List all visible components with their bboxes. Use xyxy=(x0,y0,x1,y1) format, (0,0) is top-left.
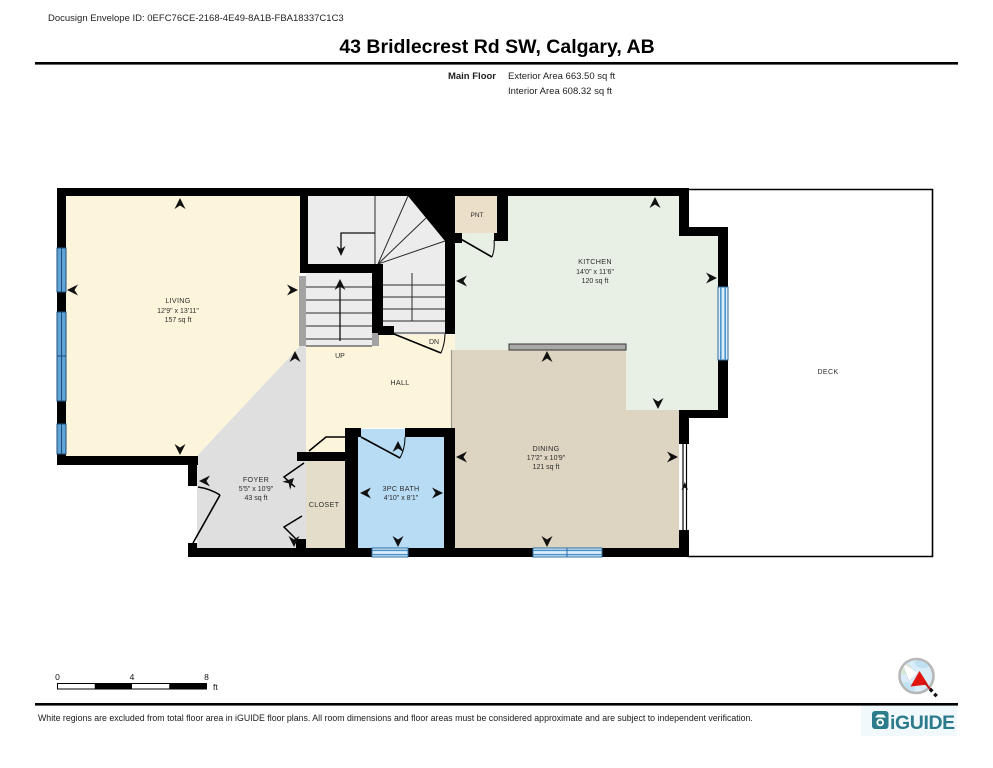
svg-text:43 sq ft: 43 sq ft xyxy=(245,495,268,502)
svg-text:iGUIDE: iGUIDE xyxy=(890,712,955,734)
svg-text:Docusign Envelope ID: 0EFC76CE: Docusign Envelope ID: 0EFC76CE-2168-4E49… xyxy=(48,13,344,24)
svg-text:14'0" x 11'6": 14'0" x 11'6" xyxy=(576,269,614,276)
svg-text:43 Bridlecrest Rd SW, Calgary,: 43 Bridlecrest Rd SW, Calgary, AB xyxy=(339,36,654,58)
svg-text:157 sq ft: 157 sq ft xyxy=(165,317,192,324)
svg-text:Exterior Area 663.50 sq ft: Exterior Area 663.50 sq ft xyxy=(508,71,616,82)
svg-text:DECK: DECK xyxy=(817,369,838,376)
svg-text:8: 8 xyxy=(204,672,209,682)
svg-text:4'10" x 8'1": 4'10" x 8'1" xyxy=(384,495,419,502)
svg-text:ft: ft xyxy=(213,682,218,692)
svg-text:DINING: DINING xyxy=(533,444,560,453)
svg-text:0: 0 xyxy=(55,672,60,682)
svg-text:DN: DN xyxy=(429,339,439,346)
svg-text:White regions are excluded fro: White regions are excluded from total fl… xyxy=(38,713,753,723)
svg-text:3PC BATH: 3PC BATH xyxy=(382,484,419,493)
svg-text:KITCHEN: KITCHEN xyxy=(578,257,612,266)
svg-text:Main Floor: Main Floor xyxy=(448,71,496,82)
svg-text:HALL: HALL xyxy=(390,378,409,387)
svg-text:5'5" x 10'9": 5'5" x 10'9" xyxy=(239,486,274,493)
svg-text:CLOSET: CLOSET xyxy=(309,500,340,509)
svg-text:12'9" x 13'11": 12'9" x 13'11" xyxy=(157,308,199,315)
svg-text:4: 4 xyxy=(130,672,135,682)
svg-text:FOYER: FOYER xyxy=(243,475,269,484)
svg-text:Interior Area 608.32 sq ft: Interior Area 608.32 sq ft xyxy=(508,86,612,97)
svg-text:120 sq ft: 120 sq ft xyxy=(582,278,609,285)
svg-text:UP: UP xyxy=(335,353,345,360)
svg-text:LIVING: LIVING xyxy=(165,296,190,305)
svg-text:PNT: PNT xyxy=(471,212,484,219)
svg-text:121 sq ft: 121 sq ft xyxy=(533,464,560,471)
svg-text:17'2" x 10'9": 17'2" x 10'9" xyxy=(527,455,566,462)
